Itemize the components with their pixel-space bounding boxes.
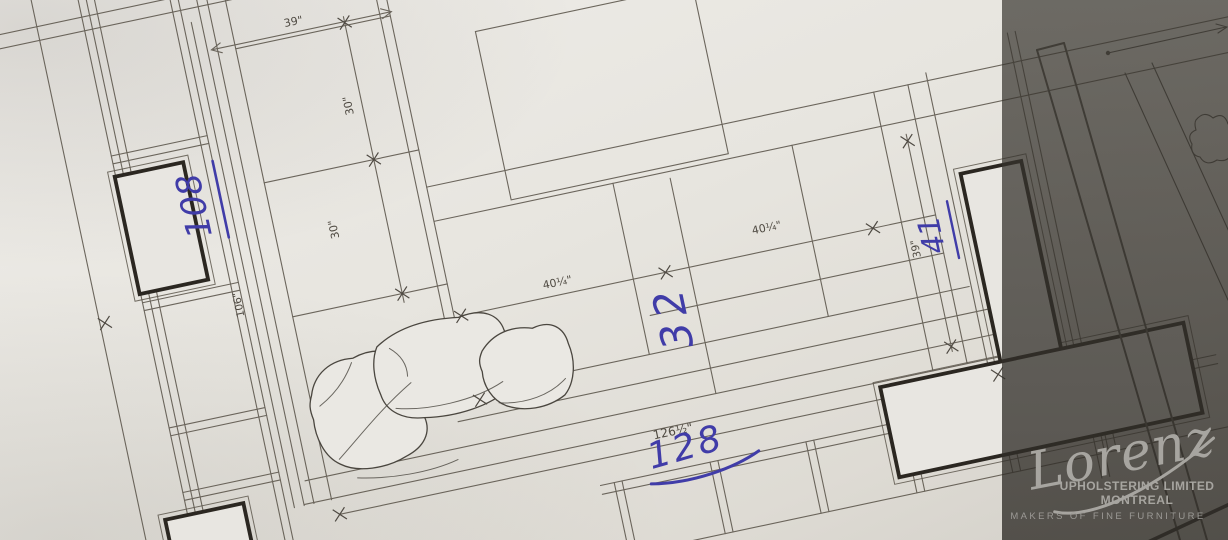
brand-line1: UPHOLSTERING LIMITED — [1060, 479, 1215, 493]
floor-plan-canvas: 39" 30" 30" 106" 40¼" 40¼" 39" 126½" 108… — [0, 0, 1228, 540]
brand-line2: MONTREAL — [1101, 493, 1174, 507]
photographed-floor-plan: 39" 30" 30" 106" 40¼" 40¼" 39" 126½" 108… — [0, 0, 1228, 540]
brand-tagline: MAKERS OF FINE FURNITURE — [1010, 511, 1205, 522]
